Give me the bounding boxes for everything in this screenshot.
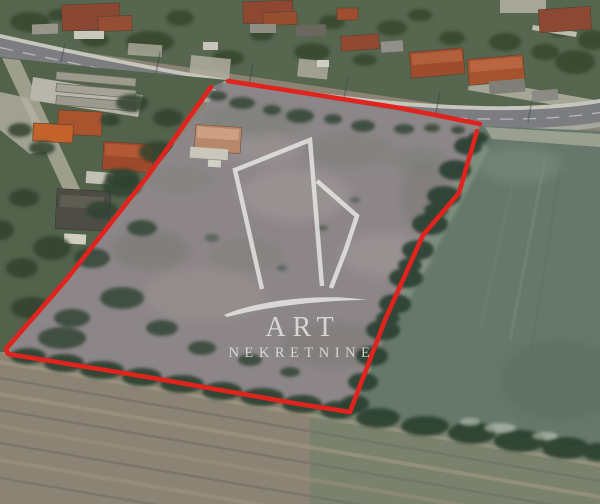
satellite-image: ART NEKRETNINE [0, 0, 600, 504]
brand-text: ART [265, 312, 340, 343]
subtitle-text: NEKRETNINE [229, 345, 376, 361]
satellite-map: ART NEKRETNINE [0, 0, 600, 504]
